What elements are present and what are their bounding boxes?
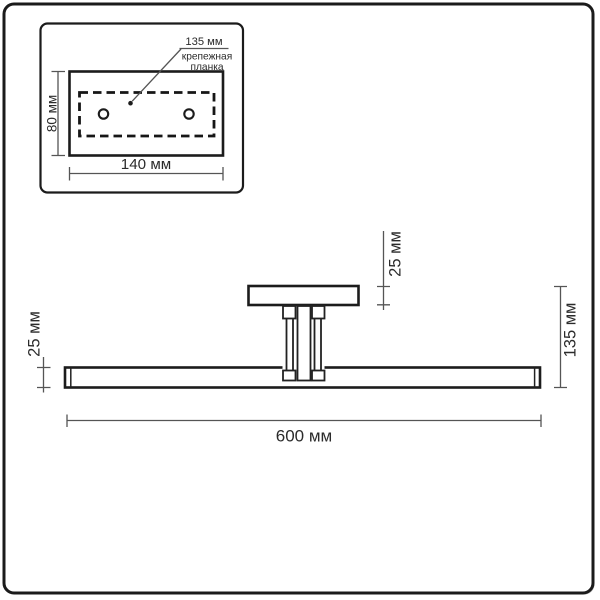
mount-post-right-top-flange [312,306,325,319]
mount-post-right-stem [315,310,322,374]
mount-column [298,306,311,381]
bracket-name-line1: крепежная [182,52,232,63]
bar-height-label: 25 мм [26,311,44,357]
mounting-plate-outline [70,72,224,156]
plate-width-label: 140 мм [121,156,171,173]
hole-spacing-label: 135 мм [185,36,222,48]
leader-dot [128,101,133,106]
mount-post-left-bottom-flange [283,371,296,381]
screw-hole-right [184,109,193,118]
mount-post-right-bottom-flange [312,371,325,381]
mount-post-left-stem [287,310,294,374]
plate-height-label: 80 мм [45,95,60,132]
overall-height-label: 135 мм [562,303,580,358]
mount-post-left-top-flange [283,306,296,319]
canopy-plate [249,286,359,305]
screw-hole-left [99,109,108,118]
canopy-height-label: 25 мм [387,231,405,277]
drawing-canvas: 135 мм крепежная планка 80 мм 140 мм [0,0,600,600]
bracket-name-line2: планка [190,62,223,73]
overall-width-label: 600 мм [276,427,332,446]
technical-drawing: 135 мм крепежная планка 80 мм 140 мм [0,0,600,600]
